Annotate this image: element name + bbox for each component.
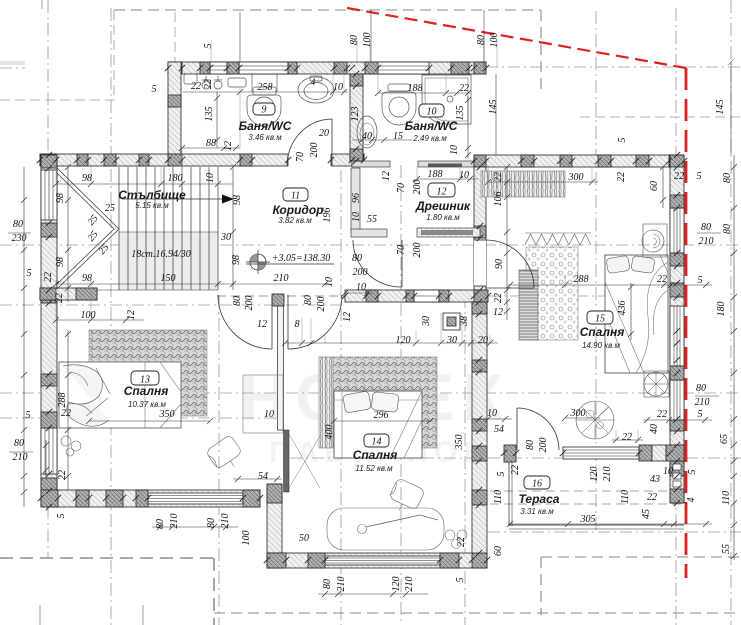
svg-text:210: 210 (404, 577, 415, 592)
svg-text:120: 120 (589, 467, 600, 482)
svg-text:12: 12 (257, 319, 267, 330)
svg-text:9: 9 (262, 105, 267, 116)
svg-text:22: 22 (203, 79, 214, 89)
svg-text:5: 5 (26, 410, 31, 421)
svg-text:10: 10 (487, 408, 497, 419)
svg-text:3.82 кв.м: 3.82 кв.м (278, 216, 312, 225)
svg-text:65: 65 (719, 434, 730, 444)
svg-text:80: 80 (525, 440, 536, 450)
svg-text:258: 258 (258, 82, 273, 93)
svg-text:100: 100 (362, 33, 373, 48)
svg-text:50: 50 (299, 533, 309, 544)
svg-text:40: 40 (362, 131, 372, 142)
svg-text:200: 200 (353, 267, 368, 278)
svg-text:10: 10 (663, 466, 673, 477)
svg-text:54: 54 (494, 424, 504, 435)
svg-text:60: 60 (649, 181, 660, 191)
svg-text:210: 210 (336, 577, 347, 592)
svg-text:15: 15 (393, 131, 403, 142)
svg-text:5: 5 (27, 268, 32, 279)
svg-text:98: 98 (55, 257, 66, 267)
svg-text:22: 22 (674, 171, 684, 182)
svg-text:14: 14 (372, 437, 382, 448)
svg-text:120: 120 (391, 577, 402, 592)
svg-text:110: 110 (493, 490, 504, 504)
svg-text:Спалня: Спалня (353, 448, 398, 462)
svg-text:2.49 кв.м: 2.49 кв.м (412, 134, 447, 143)
svg-text:123: 123 (350, 107, 361, 122)
svg-text:22: 22 (191, 81, 201, 92)
svg-text:22: 22 (456, 537, 467, 547)
svg-text:12: 12 (437, 187, 447, 198)
svg-text:22: 22 (647, 492, 657, 503)
svg-text:1.80 кв.м: 1.80 кв.м (426, 213, 460, 222)
svg-text:5.15 кв.м: 5.15 кв.м (135, 201, 169, 210)
svg-text:10: 10 (449, 145, 460, 155)
svg-text:45: 45 (641, 509, 652, 519)
svg-text:188: 188 (408, 83, 423, 94)
svg-text:145: 145 (715, 100, 726, 115)
svg-text:210: 210 (602, 467, 613, 482)
svg-text:20: 20 (478, 335, 488, 346)
svg-text:80: 80 (155, 519, 166, 529)
svg-text:5: 5 (698, 409, 703, 420)
svg-text:10: 10 (264, 409, 274, 420)
svg-text:80: 80 (476, 35, 487, 45)
svg-text:296: 296 (374, 410, 389, 421)
svg-text:10.37 кв.м: 10.37 кв.м (128, 400, 166, 409)
svg-text:80: 80 (322, 579, 333, 589)
svg-text:30: 30 (220, 232, 231, 243)
svg-text:150: 150 (161, 273, 176, 284)
svg-text:5: 5 (56, 514, 67, 519)
svg-text:80: 80 (13, 219, 23, 230)
svg-text:210: 210 (169, 514, 180, 529)
svg-text:200: 200 (412, 243, 423, 258)
svg-text:5: 5 (455, 578, 466, 583)
svg-text:145: 145 (488, 100, 499, 115)
svg-text:38: 38 (459, 316, 470, 327)
svg-text:30: 30 (421, 316, 432, 327)
svg-text:43: 43 (650, 474, 660, 485)
svg-text:196: 196 (322, 208, 333, 223)
svg-text:40: 40 (649, 424, 660, 434)
svg-text:Баня/WC: Баня/WC (405, 119, 458, 133)
svg-text:288: 288 (57, 393, 68, 408)
svg-text:22: 22 (510, 465, 521, 475)
svg-text:120: 120 (396, 335, 411, 346)
svg-text:Спалня: Спалня (124, 384, 169, 398)
svg-text:4: 4 (311, 77, 316, 87)
svg-text:Дрешник: Дрешник (415, 199, 471, 213)
svg-text:11: 11 (291, 191, 300, 202)
svg-text:55: 55 (367, 214, 377, 225)
svg-text:80: 80 (722, 224, 733, 234)
svg-text:22: 22 (622, 432, 632, 443)
svg-text:22: 22 (43, 272, 54, 282)
svg-text:100: 100 (241, 531, 252, 546)
svg-text:98: 98 (232, 195, 243, 205)
svg-text:200: 200 (538, 438, 549, 453)
svg-text:96: 96 (351, 193, 362, 203)
svg-text:5: 5 (617, 138, 628, 143)
svg-text:14.90 кв.м: 14.90 кв.м (582, 341, 620, 350)
svg-text:80: 80 (206, 518, 217, 528)
svg-text:Коридор: Коридор (273, 203, 324, 217)
svg-text:30: 30 (446, 335, 457, 346)
svg-text:5: 5 (496, 472, 507, 477)
svg-text:22: 22 (57, 470, 68, 480)
svg-text:98: 98 (82, 273, 92, 284)
svg-text:80: 80 (352, 253, 362, 264)
svg-text:+3.05=138.30: +3.05=138.30 (272, 253, 331, 264)
svg-text:88: 88 (206, 138, 216, 149)
svg-text:22: 22 (493, 293, 504, 303)
svg-text:8: 8 (295, 319, 300, 330)
svg-text:80: 80 (696, 383, 706, 394)
svg-text:10: 10 (205, 173, 216, 183)
svg-text:54: 54 (258, 471, 268, 482)
svg-text:80: 80 (701, 222, 711, 233)
svg-text:70: 70 (396, 183, 407, 193)
svg-text:300: 300 (568, 172, 584, 183)
svg-text:188: 188 (428, 169, 443, 180)
svg-text:10: 10 (459, 170, 469, 181)
svg-text:350: 350 (159, 409, 175, 420)
svg-text:5: 5 (697, 171, 702, 182)
svg-text:18ст.16.94/30: 18ст.16.94/30 (131, 249, 191, 260)
svg-text:300: 300 (570, 408, 586, 419)
svg-text:100: 100 (81, 310, 96, 321)
svg-text:Тераса: Тераса (519, 492, 560, 506)
svg-text:3.31 кв.м: 3.31 кв.м (520, 507, 554, 516)
svg-text:11.52 кв.м: 11.52 кв.м (355, 464, 393, 473)
svg-text:180: 180 (716, 302, 727, 317)
svg-text:13: 13 (140, 375, 150, 386)
svg-text:5: 5 (203, 44, 214, 49)
svg-text:98: 98 (82, 173, 92, 184)
svg-text:15: 15 (595, 314, 605, 325)
svg-text:110: 110 (721, 491, 732, 505)
svg-text:70: 70 (295, 152, 306, 162)
svg-text:210: 210 (13, 452, 28, 463)
svg-text:305: 305 (580, 514, 596, 525)
svg-text:Баня/WC: Баня/WC (239, 119, 292, 133)
svg-text:55: 55 (721, 544, 732, 554)
svg-text:10: 10 (333, 82, 343, 93)
svg-text:5: 5 (152, 84, 157, 95)
svg-text:200: 200 (244, 296, 255, 311)
svg-text:20: 20 (319, 128, 329, 139)
svg-text:12: 12 (493, 307, 503, 318)
svg-text:210: 210 (699, 236, 714, 247)
svg-text:106: 106 (493, 192, 504, 207)
svg-text:70: 70 (396, 245, 407, 255)
svg-text:350: 350 (454, 435, 465, 451)
svg-text:80: 80 (232, 296, 243, 306)
svg-text:10: 10 (427, 107, 437, 118)
svg-text:22: 22 (657, 274, 667, 285)
svg-text:135: 135 (455, 106, 466, 121)
svg-text:60: 60 (493, 546, 504, 556)
svg-text:98: 98 (55, 193, 66, 203)
svg-text:135: 135 (204, 107, 215, 122)
svg-text:80: 80 (722, 173, 733, 183)
svg-text:12: 12 (126, 310, 137, 320)
svg-text:10: 10 (351, 212, 362, 222)
svg-text:80: 80 (349, 35, 360, 45)
svg-text:22: 22 (493, 172, 504, 182)
svg-text:16: 16 (532, 479, 542, 490)
svg-text:80: 80 (14, 438, 24, 449)
svg-text:10: 10 (324, 277, 335, 287)
svg-text:5: 5 (698, 275, 703, 286)
svg-text:230: 230 (12, 233, 27, 244)
svg-text:22: 22 (61, 408, 71, 419)
svg-text:22: 22 (459, 83, 469, 94)
svg-text:210: 210 (695, 397, 710, 408)
svg-text:200: 200 (316, 297, 327, 312)
svg-text:5: 5 (687, 470, 698, 475)
svg-text:200: 200 (309, 143, 320, 158)
svg-text:12: 12 (381, 171, 392, 181)
svg-text:210: 210 (220, 514, 231, 529)
svg-text:22: 22 (616, 172, 627, 182)
svg-text:10: 10 (356, 282, 366, 293)
svg-text:400: 400 (324, 425, 335, 440)
svg-text:288: 288 (574, 274, 589, 285)
svg-text:3.46 кв.м: 3.46 кв.м (248, 133, 282, 142)
svg-text:90: 90 (494, 259, 505, 269)
svg-text:200: 200 (412, 180, 423, 195)
svg-text:12: 12 (223, 141, 234, 151)
svg-text:210: 210 (274, 273, 289, 284)
svg-text:22: 22 (54, 293, 65, 303)
svg-text:Спалня: Спалня (580, 325, 625, 339)
svg-text:98: 98 (231, 255, 242, 265)
svg-text:80: 80 (303, 295, 314, 305)
svg-text:22: 22 (657, 409, 667, 420)
svg-text:25: 25 (105, 203, 115, 214)
svg-text:436: 436 (617, 301, 628, 316)
svg-text:180: 180 (168, 173, 183, 184)
svg-text:4: 4 (686, 498, 697, 503)
svg-text:110: 110 (620, 490, 631, 504)
svg-text:100: 100 (489, 33, 500, 48)
svg-text:Стълбище: Стълбище (118, 188, 186, 202)
svg-text:12: 12 (342, 312, 353, 322)
